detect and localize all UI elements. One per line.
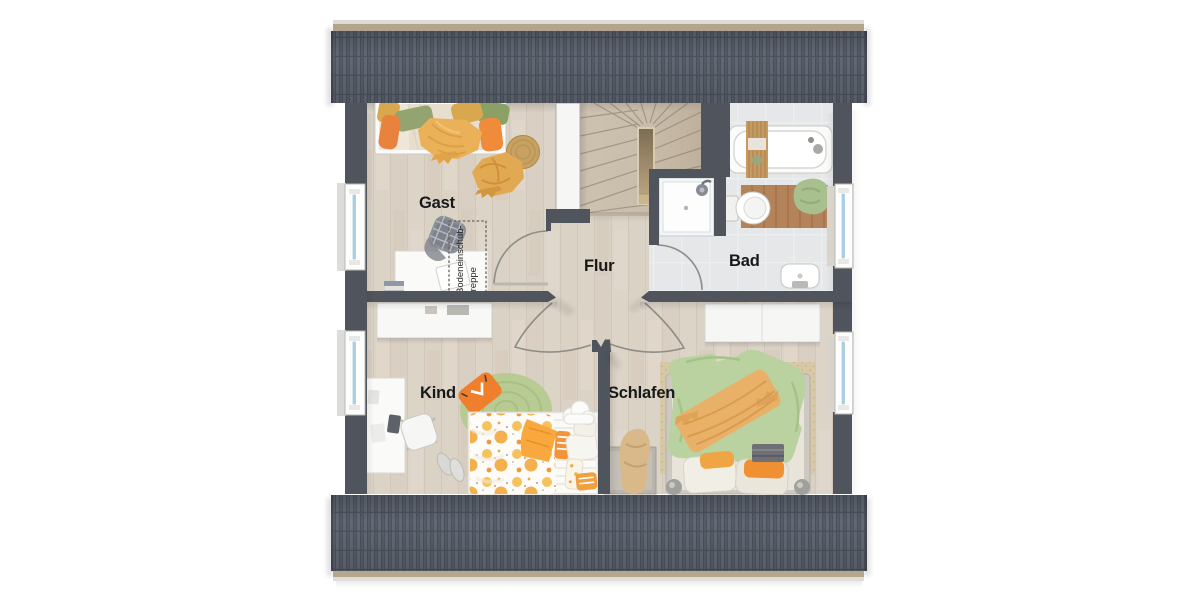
svg-text:treppe: treppe xyxy=(468,267,479,294)
svg-text:Bad: Bad xyxy=(729,252,760,270)
svg-text:Gast: Gast xyxy=(419,194,456,212)
svg-text:Bodeneinschub-: Bodeneinschub- xyxy=(455,225,466,294)
svg-text:Kind: Kind xyxy=(420,384,456,402)
svg-text:Schlafen: Schlafen xyxy=(608,384,675,402)
svg-text:Flur: Flur xyxy=(584,257,615,275)
